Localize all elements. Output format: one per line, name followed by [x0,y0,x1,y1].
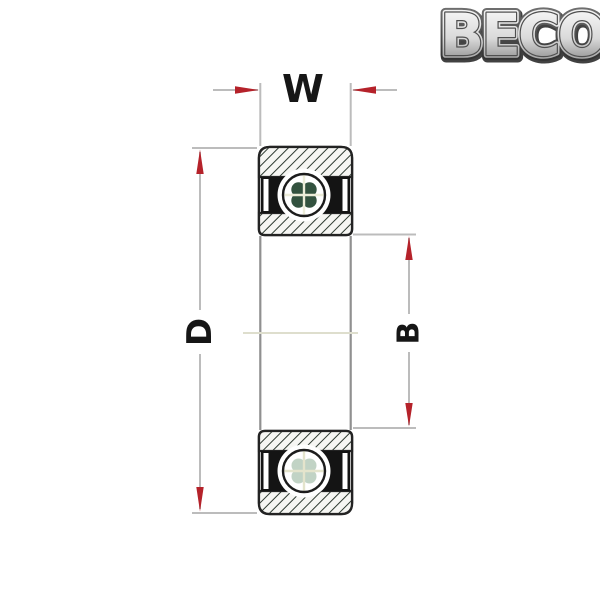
b-arrowhead-down-icon [405,403,412,427]
dimension-b: B [353,235,427,429]
bearing-top-section [259,147,352,235]
w-arrowhead-right-icon [352,86,376,93]
bearing-diagram: BECO BECO BECO BECO BECO W D [0,0,600,600]
dimension-d: D [180,148,257,513]
bearing-drawing-page: BECO BECO BECO BECO BECO W D [0,0,600,600]
bearing-cross-section [243,147,358,514]
beco-logo: BECO BECO BECO BECO BECO [440,1,600,71]
b-arrowhead-up-icon [405,236,412,260]
beco-logo-text: BECO [440,1,600,69]
outer-diameter-label: D [180,318,220,346]
d-arrowhead-up-icon [196,150,203,175]
bottom-seal-right-slot [343,453,348,489]
dimension-w: W [213,67,397,146]
w-arrowhead-left-icon [235,86,259,93]
bearing-bottom-section [259,431,352,514]
bottom-seal-left-slot [264,453,269,489]
top-seal-right-slot [343,179,348,211]
top-seal-left-slot [264,179,269,211]
d-arrowhead-down-icon [196,487,203,512]
bore-label: B [392,322,427,345]
width-label: W [282,67,324,111]
